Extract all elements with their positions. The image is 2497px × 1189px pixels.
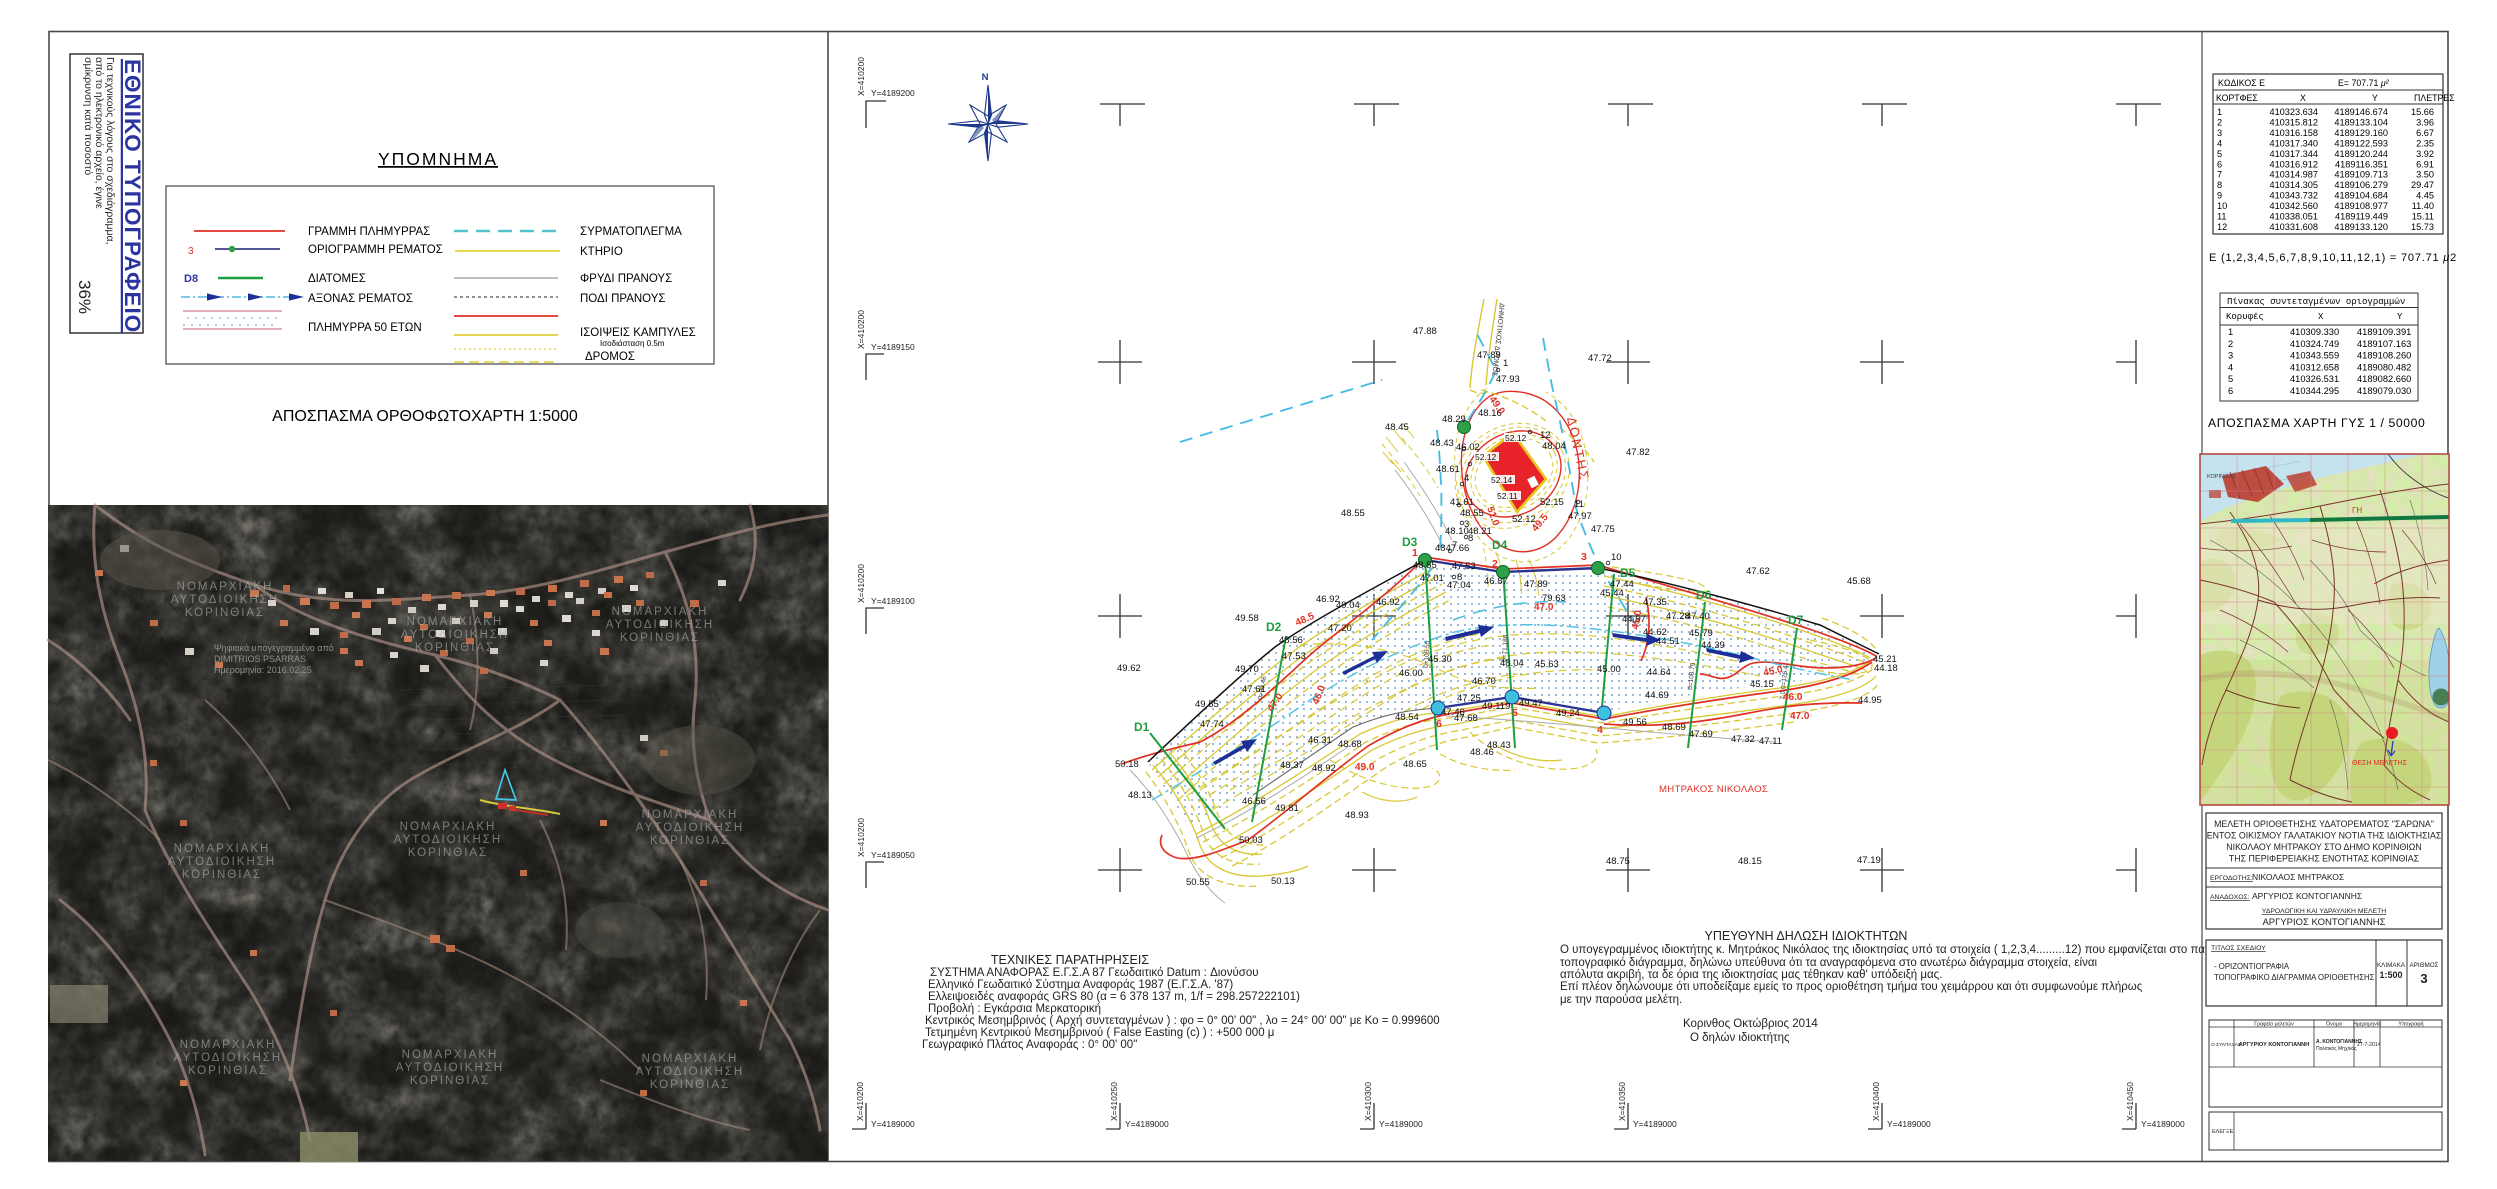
svg-text:7: 7 [2217,170,2222,180]
svg-text:Πολιτικός Μηχ/κός: Πολιτικός Μηχ/κός [2316,1045,2357,1052]
svg-text:ΤΗΣ ΠΕΡΙΦΕΡΕΙΑΚΗΣ ΕΝΟΤΗΤΑΣ Κ: ΤΗΣ ΠΕΡΙΦΕΡΕΙΑΚΗΣ ΕΝΟΤΗΤΑΣ ΚΟΡΙΝΘΙΑΣ [2229,854,2420,864]
svg-text:X=410200: X=410200 [856,310,866,349]
svg-text:4189120.244: 4189120.244 [2334,149,2388,159]
svg-text:ΑΥΤΟΔΙΟΙΚΗΣΗ: ΑΥΤΟΔΙΟΙΚΗΣΗ [636,1066,744,1078]
svg-text:Υπογραφή: Υπογραφή [2398,1021,2423,1028]
svg-text:ΠΛΕΤΡΕΣ: ΠΛΕΤΡΕΣ [2414,93,2455,103]
svg-text:46.31: 46.31 [1308,735,1332,746]
svg-text:ΝΟΜΑΡΧΙΑΚΗ: ΝΟΜΑΡΧΙΑΚΗ [612,606,709,618]
svg-text:Y=4189000: Y=4189000 [1887,1119,1931,1129]
svg-text:Γραφείο μελετών: Γραφείο μελετών [2254,1021,2294,1028]
svg-text:410312.658: 410312.658 [2290,362,2339,372]
svg-text:ΚΟΡΙΝΘΟΣ: ΚΟΡΙΝΘΟΣ [2207,474,2237,480]
svg-text:4189133.120: 4189133.120 [2334,222,2388,232]
svg-text:ΝΙΚΟΛΑΟΥ ΜΗΤΡΑΚΟΥ ΣΤΟ ΔΗΜΟ Κ: ΝΙΚΟΛΑΟΥ ΜΗΤΡΑΚΟΥ ΣΤΟ ΔΗΜΟ ΚΟΡΙΝΘΙΩΝ [2226,842,2421,852]
svg-text:47.89: 47.89 [1524,579,1548,590]
svg-text:47.35: 47.35 [1643,597,1667,608]
svg-text:48.15: 48.15 [1738,856,1762,867]
svg-text:8: 8 [1468,533,1473,544]
svg-text:11: 11 [1574,499,1584,510]
svg-text:48.65: 48.65 [1403,759,1427,770]
svg-text:11: 11 [2217,212,2227,222]
svg-text:X: X [2318,312,2324,322]
svg-text:ΕΡΓΟΔΟΤΗΣ:: ΕΡΓΟΔΟΤΗΣ: [2210,875,2253,882]
svg-text:27-7-2014: 27-7-2014 [2357,1042,2381,1048]
svg-text:48.43: 48.43 [1430,438,1454,449]
svg-text:1:500: 1:500 [2379,970,2402,980]
svg-text:Ε (1,2,3,4,5,6,7,8,9,10,11,12: Ε (1,2,3,4,5,6,7,8,9,10,11,12,1) = 707.7… [2209,252,2457,264]
svg-text:4189133.104: 4189133.104 [2334,117,2388,127]
svg-text:ΚΟΡΙΝΘΙΑΣ: ΚΟΡΙΝΘΙΑΣ [620,632,700,644]
svg-text:50.03: 50.03 [1239,835,1263,846]
svg-text:50.13: 50.13 [1271,876,1295,887]
svg-text:ΑΥΤΟΔΙΟΙΚΗΣΗ: ΑΥΤΟΔΙΟΙΚΗΣΗ [171,594,279,606]
svg-text:49.62: 49.62 [1117,663,1141,674]
svg-text:Προβολή : Εγκάρσια Μερκατορική: Προβολή : Εγκάρσια Μερκατορική [928,1003,1101,1015]
svg-text:48.55: 48.55 [1460,508,1484,519]
svg-text:47.53: 47.53 [1452,561,1476,572]
svg-text:47.01: 47.01 [1420,573,1444,584]
svg-text:ΚΟΡΙΝΘΙΑΣ: ΚΟΡΙΝΘΙΑΣ [410,1075,490,1087]
svg-text:ΚΩΔΙΚΟΣ Ε: ΚΩΔΙΚΟΣ Ε [2218,78,2265,88]
svg-text:ΑΡΓΥΡΙΟΣ ΚΟΝΤΟΓΙΑΝΝΗΣ: ΑΡΓΥΡΙΟΣ ΚΟΝΤΟΓΙΑΝΝΗΣ [2252,891,2362,901]
svg-text:2: 2 [1492,558,1498,570]
svg-text:44.69: 44.69 [1645,690,1669,701]
svg-text:48.68: 48.68 [1338,739,1362,750]
svg-text:410314.987: 410314.987 [2269,170,2318,180]
svg-text:410315.812: 410315.812 [2269,117,2318,127]
svg-text:ΑΥΤΟΔΙΟΙΚΗΣΗ: ΑΥΤΟΔΙΟΙΚΗΣΗ [394,834,502,846]
svg-text:47.25: 47.25 [1457,693,1481,704]
svg-text:3: 3 [2228,351,2233,361]
svg-text:X=410300: X=410300 [1363,1082,1373,1121]
svg-text:45.30: 45.30 [1428,654,1452,665]
svg-text:Τετμημένη Κεντρικού Μεσημβρινο: Τετμημένη Κεντρικού Μεσημβρινού ( False … [925,1027,1274,1039]
svg-text:X=410200: X=410200 [856,57,866,96]
svg-text:410317.340: 410317.340 [2269,138,2318,148]
svg-text:X=410200: X=410200 [856,564,866,603]
svg-text:44.18: 44.18 [1874,663,1898,674]
svg-text:47.61: 47.61 [1242,684,1266,695]
svg-text:Y=4189150: Y=4189150 [871,342,915,352]
svg-text:47.82: 47.82 [1626,447,1650,458]
svg-text:47.68: 47.68 [1454,713,1478,724]
svg-text:11.40: 11.40 [2412,201,2434,211]
svg-text:6.91: 6.91 [2416,159,2434,169]
svg-text:ΑΥΤΟΔΙΟΙΚΗΣΗ: ΑΥΤΟΔΙΟΙΚΗΣΗ [606,619,714,631]
svg-text:D1: D1 [1134,720,1150,734]
svg-text:4.45: 4.45 [2416,191,2434,201]
svg-text:29.47: 29.47 [2411,180,2434,190]
svg-text:49.56: 49.56 [1623,717,1647,728]
svg-text:47.11: 47.11 [1759,736,1782,747]
svg-text:Πίνακας συντεταγμένων οριογραμ: Πίνακας συντεταγμένων οριογραμμών [2227,297,2405,307]
svg-text:ΚΟΡΙΝΘΙΑΣ: ΚΟΡΙΝΘΙΑΣ [415,642,495,654]
svg-text:4189108.977: 4189108.977 [2334,201,2388,211]
svg-text:10: 10 [1611,552,1622,563]
svg-text:48.54: 48.54 [1395,712,1419,723]
svg-text:48.92: 48.92 [1312,763,1336,774]
svg-text:3: 3 [1464,519,1469,530]
svg-text:ΚΟΡΙΝΘΙΑΣ: ΚΟΡΙΝΘΙΑΣ [182,869,262,881]
svg-text:DIMITRIOS PSARRAS: DIMITRIOS PSARRAS [214,654,306,664]
svg-text:1: 1 [2228,327,2233,337]
svg-text:ΜΕΛΕΤΗ ΟΡΙΟΘΕΤΗΣΗΣ ΥΔΑΤΟΡΕΜΑ: ΜΕΛΕΤΗ ΟΡΙΟΘΕΤΗΣΗΣ ΥΔΑΤΟΡΕΜΑΤΟΣ "ΣΑΡΩΝΑ" [2214,819,2434,829]
svg-text:Ε= 707.71 μ²: Ε= 707.71 μ² [2338,78,2390,88]
svg-text:4189146.674: 4189146.674 [2334,107,2388,117]
svg-text:47.20: 47.20 [1328,623,1352,634]
svg-text:48.45: 48.45 [1385,422,1409,433]
svg-text:απόλυτα ακριβή, τα δε όρια τη: απόλυτα ακριβή, τα δε όρια της ιδιοκτησί… [1560,969,1942,981]
svg-text:X=410350: X=410350 [1617,1082,1627,1121]
svg-text:ΣΥΡΜΑΤΟΠΛΕΓΜΑ: ΣΥΡΜΑΤΟΠΛΕΓΜΑ [580,226,682,238]
svg-text:ΚΛΙΜΑΚΑ: ΚΛΙΜΑΚΑ [2377,962,2406,969]
svg-text:ΚΟΡΙΝΘΙΑΣ: ΚΟΡΙΝΘΙΑΣ [185,607,265,619]
svg-text:49.0: 49.0 [1355,762,1375,773]
svg-text:3: 3 [1581,551,1587,563]
svg-text:Ελλειψοειδές αναφοράς GRS 80 (: Ελλειψοειδές αναφοράς GRS 80 (α = 6 378 … [928,991,1300,1003]
svg-text:48.13: 48.13 [1128,790,1152,801]
svg-text:8: 8 [2217,180,2222,190]
svg-text:410344.295: 410344.295 [2290,386,2339,396]
svg-text:45.15: 45.15 [1750,679,1774,690]
svg-text:ΥΠΟΜΝΗΜΑ: ΥΠΟΜΝΗΜΑ [378,149,498,169]
svg-text:45.79: 45.79 [1689,628,1713,639]
svg-text:4189108.260: 4189108.260 [2357,351,2411,361]
svg-text:Y=4189000: Y=4189000 [1379,1119,1423,1129]
svg-text:4189109.713: 4189109.713 [2334,170,2388,180]
svg-text:X=410200: X=410200 [855,1082,865,1121]
svg-text:4: 4 [2217,138,2222,148]
svg-text:ΠΟΔΙ ΠΡΑΝΟΥΣ: ΠΟΔΙ ΠΡΑΝΟΥΣ [580,293,666,305]
svg-text:44.64: 44.64 [1647,667,1671,678]
svg-text:47.93: 47.93 [1496,374,1520,385]
svg-text:46.92: 46.92 [1316,594,1340,605]
svg-text:ΚΟΡΙΝΘΙΑΣ: ΚΟΡΙΝΘΙΑΣ [408,847,488,859]
svg-text:47.97: 47.97 [1568,511,1592,522]
svg-text:ΕΛΕΓΞΕ: ΕΛΕΓΞΕ [2212,1129,2234,1135]
svg-text:52.14: 52.14 [1491,475,1513,485]
svg-text:D6: D6 [1696,588,1712,602]
svg-text:5: 5 [2217,149,2222,159]
svg-text:5: 5 [2228,374,2233,384]
svg-text:ΙΣΟΙΨΕΙΣ ΚΑΜΠΥΛΕΣ: ΙΣΟΙΨΕΙΣ ΚΑΜΠΥΛΕΣ [580,327,696,339]
svg-text:4189104.684: 4189104.684 [2334,191,2388,201]
svg-text:Y: Y [2372,93,2378,103]
svg-text:ΝΟΜΑΡΧΙΑΚΗ: ΝΟΜΑΡΧΙΑΚΗ [400,821,497,833]
svg-text:49.55: 49.55 [1195,699,1219,710]
svg-text:Ισοδιάσταση 0.5m: Ισοδιάσταση 0.5m [600,339,665,348]
svg-text:Ελληνικό Γεωδαιτικό Σύστημα Αν: Ελληνικό Γεωδαιτικό Σύστημα Αναφοράς 198… [928,979,1233,991]
svg-text:ΚΟΡΤΦΕΣ: ΚΟΡΤΦΕΣ [2216,93,2258,103]
svg-text:Όνομα: Όνομα [2325,1022,2342,1028]
svg-text:47.0: 47.0 [1790,711,1810,722]
svg-text:ΝΟΜΑΡΧΙΑΚΗ: ΝΟΜΑΡΧΙΑΚΗ [177,581,274,593]
svg-text:48.93: 48.93 [1345,810,1369,821]
svg-text:410309.330: 410309.330 [2290,327,2339,337]
svg-text:5: 5 [1512,707,1518,719]
svg-text:ΕΝΤΟΣ ΟΙΚΙΣΜΟΥ ΓΑΛΑΤΑΚΙΟΥ ΝΟΤ: ΕΝΤΟΣ ΟΙΚΙΣΜΟΥ ΓΑΛΑΤΑΚΙΟΥ ΝΟΤΙΑ ΤΗΣ ΙΔΙΟ… [2207,831,2442,841]
svg-text:4189116.351: 4189116.351 [2335,159,2388,169]
svg-text:52.12: 52.12 [1475,452,1497,462]
svg-text:4: 4 [2228,362,2233,372]
svg-text:49.58: 49.58 [1235,613,1259,624]
svg-text:3.96: 3.96 [2416,117,2434,127]
svg-text:47.72: 47.72 [1588,353,1612,364]
svg-text:X=410450: X=410450 [2125,1082,2135,1121]
svg-text:3: 3 [2420,971,2427,986]
svg-text:3: 3 [188,246,194,257]
svg-text:τοπογραφικό διάγραμμα, δηλώνω: τοπογραφικό διάγραμμα, δηλώνω υπεύθυνα ό… [1560,957,2097,969]
svg-text:15.73: 15.73 [2411,222,2434,232]
svg-text:ΚΤΗΡΙΟ: ΚΤΗΡΙΟ [580,246,623,258]
svg-text:48.04: 48.04 [1542,441,1566,452]
svg-text:D8: D8 [184,273,198,285]
svg-text:46.56: 46.56 [1242,796,1266,807]
svg-text:12: 12 [2217,222,2227,232]
svg-text:Y=4189000: Y=4189000 [2141,1119,2185,1129]
svg-text:Y=4189000: Y=4189000 [1125,1119,1169,1129]
svg-text:1: 1 [2217,107,2222,117]
svg-text:4189082.660: 4189082.660 [2357,374,2411,384]
svg-text:Y=4189050: Y=4189050 [871,850,915,860]
svg-text:12: 12 [1540,430,1551,441]
svg-text:ΓΗ: ΓΗ [2352,506,2362,515]
svg-text:ΑΞΟΝΑΣ ΡΕΜΑΤΟΣ: ΑΞΟΝΑΣ ΡΕΜΑΤΟΣ [308,293,413,305]
svg-text:48.55: 48.55 [1341,508,1365,519]
svg-text:2: 2 [2228,339,2233,349]
svg-text:με την παρούσα μελέτη.: με την παρούσα μελέτη. [1560,994,1682,1006]
svg-text:47.0: 47.0 [1534,602,1554,613]
svg-text:D7: D7 [1788,613,1804,627]
svg-text:ΑΝΑΔΟΧΟΣ:: ΑΝΑΔΟΧΟΣ: [2210,894,2250,901]
svg-text:ΚΟΡΙΝΘΙΑΣ: ΚΟΡΙΝΘΙΑΣ [188,1065,268,1077]
svg-text:52.11: 52.11 [1497,491,1518,501]
svg-text:Ο δηλών ιδιοκτήτης: Ο δηλών ιδιοκτήτης [1690,1032,1790,1044]
svg-text:4189107.163: 4189107.163 [2357,339,2411,349]
svg-text:ΑΡΓΥΡΙΟΣ ΚΟΝΤΟΓΙΑΝΝΗΣ: ΑΡΓΥΡΙΟΣ ΚΟΝΤΟΓΙΑΝΝΗΣ [2262,917,2385,928]
svg-text:44.95: 44.95 [1858,695,1882,706]
svg-text:Α. ΚΟΝΤΟΓΙΑΝΝΗΣ: Α. ΚΟΝΤΟΓΙΑΝΝΗΣ [2316,1039,2362,1045]
svg-text:N: N [982,72,989,83]
svg-text:49.24: 49.24 [1556,708,1580,719]
svg-text:Κορυφές: Κορυφές [2226,312,2264,322]
svg-text:Ο υπογεγραμμένος ιδιοκτήτης κ: Ο υπογεγραμμένος ιδιοκτήτης κ. Μητράκος … [1560,944,2224,956]
svg-text:47.69: 47.69 [1689,729,1713,740]
svg-text:48.56: 48.56 [1279,635,1303,646]
svg-text:410342.560: 410342.560 [2269,201,2318,211]
svg-text:410317.344: 410317.344 [2269,149,2318,159]
svg-text:D4: D4 [1492,538,1508,552]
svg-text:ΔΡΟΜΟΣ: ΔΡΟΜΟΣ [585,351,635,363]
svg-text:410331.608: 410331.608 [2269,222,2318,232]
svg-text:50.55: 50.55 [1186,877,1210,888]
svg-text:4: 4 [1597,724,1603,736]
svg-text:410338.051: 410338.051 [2269,212,2318,222]
svg-text:47.88: 47.88 [1413,326,1437,337]
svg-text:3.50: 3.50 [2416,170,2434,180]
svg-text:36%: 36% [75,280,94,314]
svg-text:3.92: 3.92 [2416,149,2434,159]
svg-text:44.51: 44.51 [1656,636,1680,647]
svg-text:47.19: 47.19 [1857,855,1881,866]
svg-text:ΦΡΥΔΙ ΠΡΑΝΟΥΣ: ΦΡΥΔΙ ΠΡΑΝΟΥΣ [580,273,672,285]
svg-text:ΑΠΟΣΠΑΣΜΑ ΟΡΘΟΦΩΤΟΧΑΡΤΗ 1:500: ΑΠΟΣΠΑΣΜΑ ΟΡΘΟΦΩΤΟΧΑΡΤΗ 1:5000 [272,408,578,425]
svg-text:ΑΥΤΟΔΙΟΙΚΗΣΗ: ΑΥΤΟΔΙΟΙΚΗΣΗ [636,822,744,834]
svg-text:410316.912: 410316.912 [2269,159,2318,169]
svg-text:4189106.279: 4189106.279 [2334,180,2388,190]
svg-text:46.87: 46.87 [1484,576,1508,587]
svg-text:ΤΙΤΛΟΣ ΣΧΕΔΙΟΥ: ΤΙΤΛΟΣ ΣΧΕΔΙΟΥ [2211,945,2266,952]
svg-text:47.40: 47.40 [1686,611,1710,622]
svg-text:Ψηφιακά υπογεγραμμένο από: Ψηφιακά υπογεγραμμένο από [214,643,334,653]
svg-text:ΑΥΤΟΔΙΟΙΚΗΣΗ: ΑΥΤΟΔΙΟΙΚΗΣΗ [396,1062,504,1074]
svg-text:52.12: 52.12 [1505,433,1527,443]
svg-text:46.00: 46.00 [1399,668,1423,679]
svg-text:410343.732: 410343.732 [2269,191,2318,201]
svg-text:ΑΥΤΟΔΙΟΙΚΗΣΗ: ΑΥΤΟΔΙΟΙΚΗΣΗ [168,856,276,868]
svg-text:X=410250: X=410250 [1109,1082,1119,1121]
svg-text:- ΟΡΙΖΟΝΤΙΟΓΡΑΦΙΑ: - ΟΡΙΖΟΝΤΙΟΓΡΑΦΙΑ [2214,962,2290,971]
svg-text:41.61: 41.61 [1450,497,1474,508]
svg-text:47.32: 47.32 [1731,734,1755,745]
svg-text:Κορινθος Οκτώβριος 2014: Κορινθος Οκτώβριος 2014 [1683,1018,1818,1030]
svg-text:Κεντρικός Μεσημβρινός ( Αρχή σ: Κεντρικός Μεσημβρινός ( Αρχή συντεταγμέν… [925,1015,1440,1027]
svg-text:Επί πλέον δηλώνουμε ότι υποδεί: Επί πλέον δηλώνουμε ότι υποδείξαμε εμείς… [1560,981,2143,993]
svg-text:48.37: 48.37 [1280,760,1304,771]
svg-text:2.35: 2.35 [2416,138,2434,148]
svg-text:47.62: 47.62 [1746,566,1770,577]
svg-text:Y=4189200: Y=4189200 [871,88,915,98]
svg-text:15.11: 15.11 [2412,212,2434,222]
svg-text:ΑΥΤΟΔΙΟΙΚΗΣΗ: ΑΥΤΟΔΙΟΙΚΗΣΗ [174,1052,282,1064]
svg-text:47.44: 47.44 [1610,579,1634,590]
svg-text:49.81: 49.81 [1275,803,1299,814]
svg-text:10: 10 [2217,201,2227,211]
svg-text:48.75: 48.75 [1606,856,1630,867]
svg-text:ΝΟΜΑΡΧΙΑΚΗ: ΝΟΜΑΡΧΙΑΚΗ [402,1049,499,1061]
svg-text:44.39: 44.39 [1701,640,1725,651]
svg-text:ΑΠΟΣΠΑΣΜΑ ΧΑΡΤΗ ΓΥΣ 1 / 500: ΑΠΟΣΠΑΣΜΑ ΧΑΡΤΗ ΓΥΣ 1 / 50000 [2208,416,2425,430]
svg-text:410316.158: 410316.158 [2269,128,2318,138]
svg-text:15.66: 15.66 [2411,107,2434,117]
svg-text:σμίκρυνση κατά ποσοστό: σμίκρυνση κατά ποσοστό [82,57,94,175]
svg-text:47.75: 47.75 [1591,524,1615,535]
svg-text:50.18: 50.18 [1115,759,1139,770]
svg-text:4189122.593: 4189122.593 [2334,138,2388,148]
svg-text:6: 6 [1436,718,1442,730]
svg-text:8: 8 [1457,572,1462,583]
svg-text:ΝΟΜΑΡΧΙΑΚΗ: ΝΟΜΑΡΧΙΑΚΗ [174,843,271,855]
svg-text:X=410200: X=410200 [856,818,866,857]
svg-text:48.55: 48.55 [1413,560,1437,571]
svg-text:ΝΙΚΟΛΑΟΣ ΜΗΤΡΑΚΟΣ: ΝΙΚΟΛΑΟΣ ΜΗΤΡΑΚΟΣ [2252,872,2344,882]
svg-text:ΓΡΑΜΜΗ ΠΛΗΜΥΡΡΑΣ: ΓΡΑΜΜΗ ΠΛΗΜΥΡΡΑΣ [308,226,430,238]
svg-text:ΠΛΗΜΥΡΡΑ 50 ΕΤΩΝ: ΠΛΗΜΥΡΡΑ 50 ΕΤΩΝ [308,322,422,334]
svg-text:48.04: 48.04 [1500,658,1524,669]
svg-text:X: X [2300,93,2306,103]
svg-text:ΤΕΧΝΙΚΕΣ ΠΑΡΑΤΗΡΗΣΕΙΣ: ΤΕΧΝΙΚΕΣ ΠΑΡΑΤΗΡΗΣΕΙΣ [991,953,1149,967]
svg-text:ΤΟΠΟΓΡΑΦΙΚΟ ΔΙΑΓΡΑΜΜΑ ΟΡΙΟΘΕΤΗ: ΤΟΠΟΓΡΑΦΙΚΟ ΔΙΑΓΡΑΜΜΑ ΟΡΙΟΘΕΤΗΣΗΣ [2214,973,2375,982]
svg-text:6.67: 6.67 [2416,128,2434,138]
svg-text:ΔΙΑΤΟΜΕΣ: ΔΙΑΤΟΜΕΣ [308,273,366,285]
svg-text:ΘΕΣΗ ΜΕΛΕΤΗΣ: ΘΕΣΗ ΜΕΛΕΤΗΣ [2352,760,2408,767]
svg-text:2: 2 [2217,117,2222,127]
svg-text:D2: D2 [1266,620,1282,634]
svg-text:ΝΟΜΑΡΧΙΑΚΗ: ΝΟΜΑΡΧΙΑΚΗ [180,1039,277,1051]
svg-text:45.00: 45.00 [1597,664,1621,675]
svg-text:ΝΟΜΑΡΧΙΑΚΗ: ΝΟΜΑΡΧΙΑΚΗ [642,1053,739,1065]
svg-text:45.63: 45.63 [1535,659,1559,670]
svg-text:45.68: 45.68 [1847,576,1871,587]
svg-text:Ημερομηνία: Ημερομηνία [2353,1022,2381,1028]
svg-text:410324.749: 410324.749 [2290,339,2339,349]
svg-text:49.119: 49.119 [1482,701,1510,712]
svg-text:ΝΟΜΑΡΧΙΑΚΗ: ΝΟΜΑΡΧΙΑΚΗ [407,616,504,628]
svg-text:ΑΥΤΟΔΙΟΙΚΗΣΗ: ΑΥΤΟΔΙΟΙΚΗΣΗ [401,629,509,641]
svg-text:ΑΡΙΘΜΟΣ: ΑΡΙΘΜΟΣ [2409,962,2438,969]
svg-text:46.92: 46.92 [1376,597,1400,608]
svg-text:3: 3 [2217,128,2222,138]
svg-text:Ημερομηνία: 2016.02.25: Ημερομηνία: 2016.02.25 [214,665,312,675]
svg-text:D5: D5 [1620,566,1636,580]
svg-text:7: 7 [1452,540,1457,551]
svg-text:6: 6 [2217,159,2222,169]
svg-text:ΥΠΕΥΘΥΝΗ ΔΗΛΩΣΗ ΙΔΙΟΚΤΗΤΩΝ: ΥΠΕΥΘΥΝΗ ΔΗΛΩΣΗ ΙΔΙΟΚΤΗΤΩΝ [1705,929,1908,943]
svg-text:46.0: 46.0 [1783,692,1803,703]
svg-text:46.70: 46.70 [1472,676,1496,687]
svg-text:ΚΟΡΙΝΘΙΑΣ: ΚΟΡΙΝΘΙΑΣ [650,1079,730,1091]
svg-text:48.29: 48.29 [1442,414,1466,425]
svg-text:ΣΥΣΤΗΜΑ ΑΝΑΦΟΡΑΣ Ε.Γ.Σ.Α: ΣΥΣΤΗΜΑ ΑΝΑΦΟΡΑΣ Ε.Γ.Σ.Α 87 Γεωδαιτικό D… [930,967,1259,979]
svg-text:Y=4189100: Y=4189100 [871,596,915,606]
svg-text:4189109.391: 4189109.391 [2357,327,2411,337]
svg-text:49.47: 49.47 [1519,698,1543,709]
svg-text:ΑΡΓΥΡΙΟΥ ΚΟΝΤΟΓΙΑΝΝΗ: ΑΡΓΥΡΙΟΥ ΚΟΝΤΟΓΙΑΝΝΗ [2239,1042,2310,1048]
svg-text:48.61: 48.61 [1436,464,1460,475]
svg-text:47.74: 47.74 [1200,719,1224,730]
svg-text:Y=4189000: Y=4189000 [1633,1119,1677,1129]
svg-text:9: 9 [2217,191,2222,201]
svg-text:48.69: 48.69 [1662,722,1686,733]
svg-text:6: 6 [2228,386,2233,396]
svg-text:47.53: 47.53 [1282,651,1306,662]
svg-text:410323.634: 410323.634 [2269,107,2318,117]
svg-text:Y=4189000: Y=4189000 [871,1119,915,1129]
svg-text:ΥΔΡΟΛΟΓΙΚΗ ΚΑΙ ΥΔΡΑΥΛΙΚΗ ΜΕΛΕΤ: ΥΔΡΟΛΟΓΙΚΗ ΚΑΙ ΥΔΡΑΥΛΙΚΗ ΜΕΛΕΤΗ [2262,908,2386,915]
svg-text:4189119.449: 4189119.449 [2335,212,2388,222]
svg-text:1: 1 [1503,358,1508,369]
svg-text:410343.559: 410343.559 [2290,351,2339,361]
svg-text:410326.531: 410326.531 [2290,374,2339,384]
svg-text:ΚΟΡΙΝΘΙΑΣ: ΚΟΡΙΝΘΙΑΣ [650,835,730,847]
svg-text:ΝΟΜΑΡΧΙΑΚΗ: ΝΟΜΑΡΧΙΑΚΗ [642,809,739,821]
svg-text:410314.305: 410314.305 [2269,180,2318,190]
svg-text:4189079.030: 4189079.030 [2357,386,2411,396]
svg-text:Γεωγραφικό Πλάτος Αναφοράς : 0: Γεωγραφικό Πλάτος Αναφοράς : 0° 00' 00" [922,1039,1137,1051]
svg-text:46.02: 46.02 [1456,442,1480,453]
svg-text:4: 4 [1464,473,1469,484]
svg-text:4189129.160: 4189129.160 [2334,128,2388,138]
svg-text:ΜΗΤΡΑΚΟΣ ΝΙΚΟΛΑΟΣ: ΜΗΤΡΑΚΟΣ ΝΙΚΟΛΑΟΣ [1659,784,1768,795]
svg-text:49.70: 49.70 [1235,664,1259,675]
svg-text:X=410400: X=410400 [1871,1082,1881,1121]
svg-text:48.46: 48.46 [1470,747,1494,758]
svg-text:Ο ΣΥΝΤΑΞΑΣ: Ο ΣΥΝΤΑΞΑΣ [2211,1042,2241,1048]
svg-text:ΕΘΝΙΚΟ ΤΥΠΟΓΡΑΦΕΙΟ: ΕΘΝΙΚΟ ΤΥΠΟΓΡΑΦΕΙΟ [120,59,145,333]
svg-text:Y: Y [2397,312,2403,322]
svg-text:1: 1 [1412,547,1418,559]
